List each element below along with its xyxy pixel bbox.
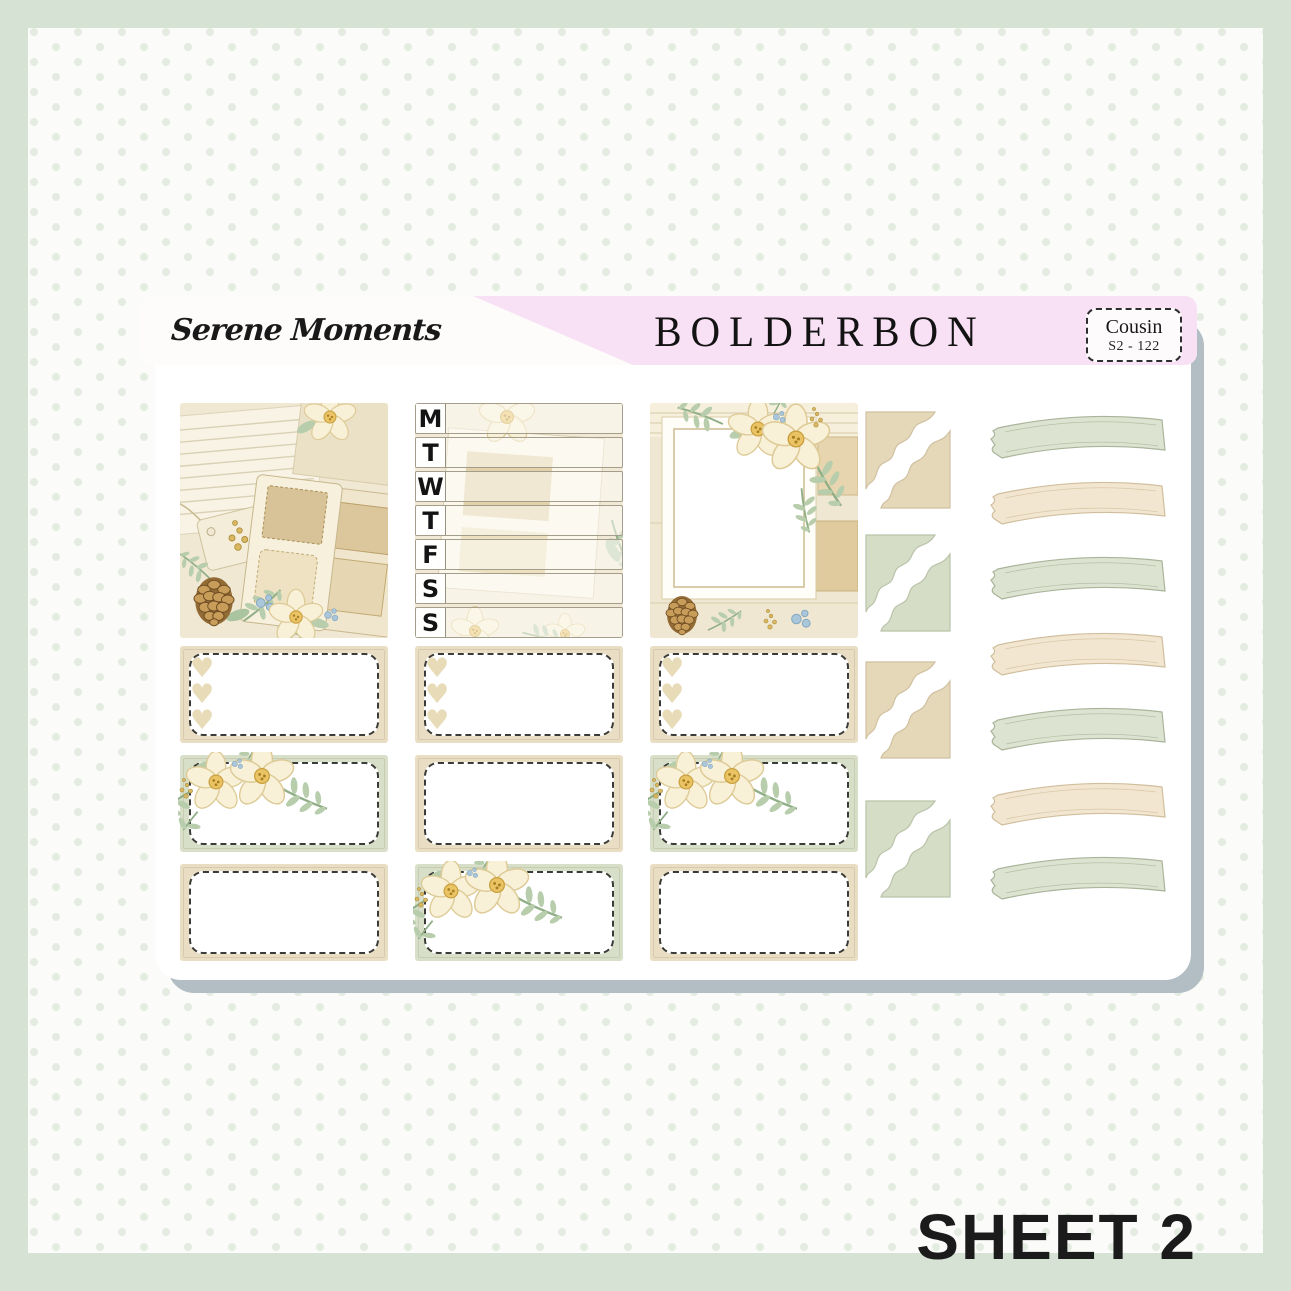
half-box-hearts: ♥♥♥ [415, 646, 623, 743]
photo-frame-box [650, 403, 858, 638]
dotted-background: MTWTFSS [28, 28, 1263, 1253]
collection-title: Serene Moments [154, 296, 459, 365]
weekday-letter: W [416, 472, 446, 501]
weekly-date-cover-box: MTWTFSS [415, 403, 623, 638]
washi-swoosh-tan [986, 472, 1168, 534]
weekday-letter: T [416, 438, 446, 467]
weekday-strip: M [415, 403, 623, 434]
weekday-strip: S [415, 607, 623, 638]
heart-icon: ♥ [190, 707, 214, 734]
weekday-letter: F [416, 540, 446, 569]
corner-sticker-pair-sage [863, 533, 953, 633]
washi-swoosh-sage [986, 698, 1168, 760]
half-box-grid: ♥♥♥♥♥♥♥♥♥ [180, 646, 858, 961]
corner-sticker-pair-tan [863, 410, 953, 510]
corner-sticker-pair-tan [863, 660, 953, 760]
heart-icon: ♥ [190, 681, 214, 708]
heart-icon: ♥ [660, 655, 684, 682]
heart-icon: ♥ [190, 655, 214, 682]
half-box-writing-area [189, 653, 379, 736]
half-box-writing-area [424, 762, 614, 845]
weekday-strip: T [415, 437, 623, 468]
size-tag-code: S2 - 122 [1108, 339, 1159, 355]
half-box-hearts: ♥♥♥ [180, 646, 388, 743]
scrapbook-scene-box [180, 403, 388, 638]
half-box-flowers [415, 864, 623, 961]
half-box-plain [650, 864, 858, 961]
washi-swoosh-sage [986, 547, 1168, 609]
header-band: Serene Moments BOLDERBON Cousin S2 - 122 [140, 296, 1197, 365]
weekday-letter: T [416, 506, 446, 535]
half-box-writing-area [659, 762, 849, 845]
size-tag-name: Cousin [1106, 315, 1163, 339]
weekday-letter: S [416, 574, 446, 603]
brand-name: BOLDERBON [640, 296, 1000, 365]
heart-icon: ♥ [425, 681, 449, 708]
half-box-plain [415, 755, 623, 852]
half-box-flowers [180, 755, 388, 852]
half-box-writing-area [659, 871, 849, 954]
weekday-letter: M [416, 404, 446, 433]
half-box-flowers [650, 755, 858, 852]
half-box-writing-area [424, 653, 614, 736]
washi-swoosh-sage [986, 847, 1168, 909]
weekday-strip: S [415, 573, 623, 604]
scrapbook-art [180, 403, 388, 638]
heart-icon: ♥ [660, 681, 684, 708]
half-box-hearts: ♥♥♥ [650, 646, 858, 743]
half-box-writing-area [189, 762, 379, 845]
corner-sticker-pair-sage [863, 799, 953, 899]
half-box-writing-area [424, 871, 614, 954]
sheet-number-label: SHEET 2 [916, 1200, 1197, 1274]
half-box-writing-area [189, 871, 379, 954]
weekday-strip-list: MTWTFSS [415, 403, 623, 638]
heart-icon: ♥ [425, 707, 449, 734]
weekday-letter: S [416, 608, 446, 637]
washi-swoosh-tan [986, 623, 1168, 685]
mint-border-frame: MTWTFSS [0, 0, 1291, 1291]
weekday-strip: F [415, 539, 623, 570]
sticker-sheet: MTWTFSS [155, 307, 1191, 980]
half-box-writing-area [659, 653, 849, 736]
weekday-strip: W [415, 471, 623, 502]
heart-icon: ♥ [425, 655, 449, 682]
size-tag: Cousin S2 - 122 [1086, 308, 1182, 362]
weekday-strip: T [415, 505, 623, 536]
half-box-plain [180, 864, 388, 961]
heart-icon: ♥ [660, 707, 684, 734]
photo-frame-art [650, 403, 858, 638]
washi-swoosh-sage [986, 406, 1168, 468]
washi-swoosh-tan [986, 773, 1168, 835]
